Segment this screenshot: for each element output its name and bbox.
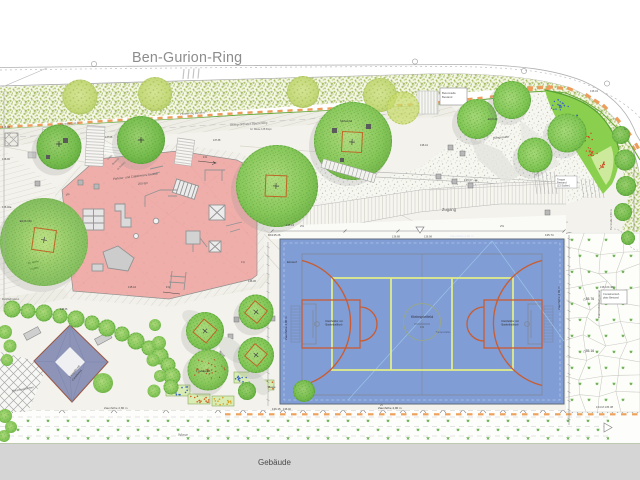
svg-text:platz Bestand: platz Bestand [603,296,619,300]
svg-text:1%: 1% [203,155,208,159]
svg-text:136.43: 136.43 [286,223,294,227]
svg-text:DK135.26: DK135.26 [268,233,281,237]
svg-text:Turnhalle 4,50 m: Turnhalle 4,50 m [609,208,613,230]
svg-text:△55.76: △55.76 [583,297,594,301]
svg-text:Kleinfeldtor mit: Kleinfeldtor mit [325,319,342,323]
svg-text:Mehrfachnutzen: Mehrfachnutzen [2,298,20,301]
svg-text:135.74: 135.74 [545,233,554,237]
svg-text:Einwurf: Einwurf [287,260,297,264]
svg-text:Zaunhöhe 4,00 m: Zaunhöhe 4,00 m [284,316,288,340]
svg-text:+ Aufstiegsh.: + Aufstiegsh. [196,369,211,373]
svg-text:Fahrradverleihstation: Fahrradverleihstation [597,289,601,318]
svg-text:Zaunhöhe 4,00 m: Zaunhöhe 4,00 m [557,286,561,310]
svg-text:136.40: 136.40 [2,157,10,161]
svg-text:Kleinfeldtor mit: Kleinfeldtor mit [501,319,518,323]
svg-text:Sitzwürfel: Sitzwürfel [340,119,353,123]
svg-text:138.36: 138.36 [60,308,68,311]
svg-text:136.88: 136.88 [392,235,400,239]
svg-text:Bestand: Bestand [442,95,453,99]
svg-text:1%: 1% [166,285,171,289]
svg-text:Zugang: Zugang [442,207,457,212]
svg-text:■136.43: ■136.43 [488,117,498,121]
svg-text:136.15: 136.15 [272,407,281,411]
svg-text:136.40: 136.40 [283,407,291,411]
svg-text:137.38: 137.38 [213,139,221,142]
svg-text:136.40a: 136.40a [2,205,12,209]
svg-text:Zaunhöhe 2,80 m: Zaunhöhe 2,80 m [104,406,128,410]
svg-text:Gebäude: Gebäude [258,458,291,467]
svg-text:Zaunhöhe 4,00 m: Zaunhöhe 4,00 m [450,234,474,238]
svg-text:Basketballkorb: Basketballkorb [325,323,343,327]
svg-text:Gr. Wiese 135.50qm: Gr. Wiese 135.50qm [250,128,272,131]
svg-text:(13 Stufen): (13 Stufen) [557,184,570,188]
svg-text:137.08: 137.08 [105,136,113,139]
svg-text:134.M 135.38: 134.M 135.38 [596,405,614,409]
svg-text:136.41: 136.41 [420,143,428,147]
svg-text:2%: 2% [500,224,505,228]
svg-text:136.07: 136.07 [464,178,473,182]
svg-text:Wiese: Wiese [178,433,188,437]
svg-text:2%: 2% [300,224,305,228]
svg-text:■136.366: ■136.366 [20,219,32,223]
svg-text:136.34: 136.34 [590,89,598,93]
svg-text:136.46: 136.46 [2,125,10,129]
svg-text:Containerstell-: Containerstell- [603,292,620,296]
svg-text:Basketballkorb: Basketballkorb [501,323,519,327]
svg-text:Kleinspielfeld: Kleinspielfeld [411,315,433,319]
svg-text:136.98: 136.98 [424,235,432,239]
svg-text:Transportable: Transportable [436,331,451,334]
svg-text:136.36: 136.36 [248,279,256,283]
svg-text:136.100.487: 136.100.487 [600,285,615,289]
svg-text:Ben-Gurion-Ring: Ben-Gurion-Ring [132,50,242,66]
svg-text:△55.16: △55.16 [583,349,594,353]
svg-text:135.44: 135.44 [128,285,136,289]
